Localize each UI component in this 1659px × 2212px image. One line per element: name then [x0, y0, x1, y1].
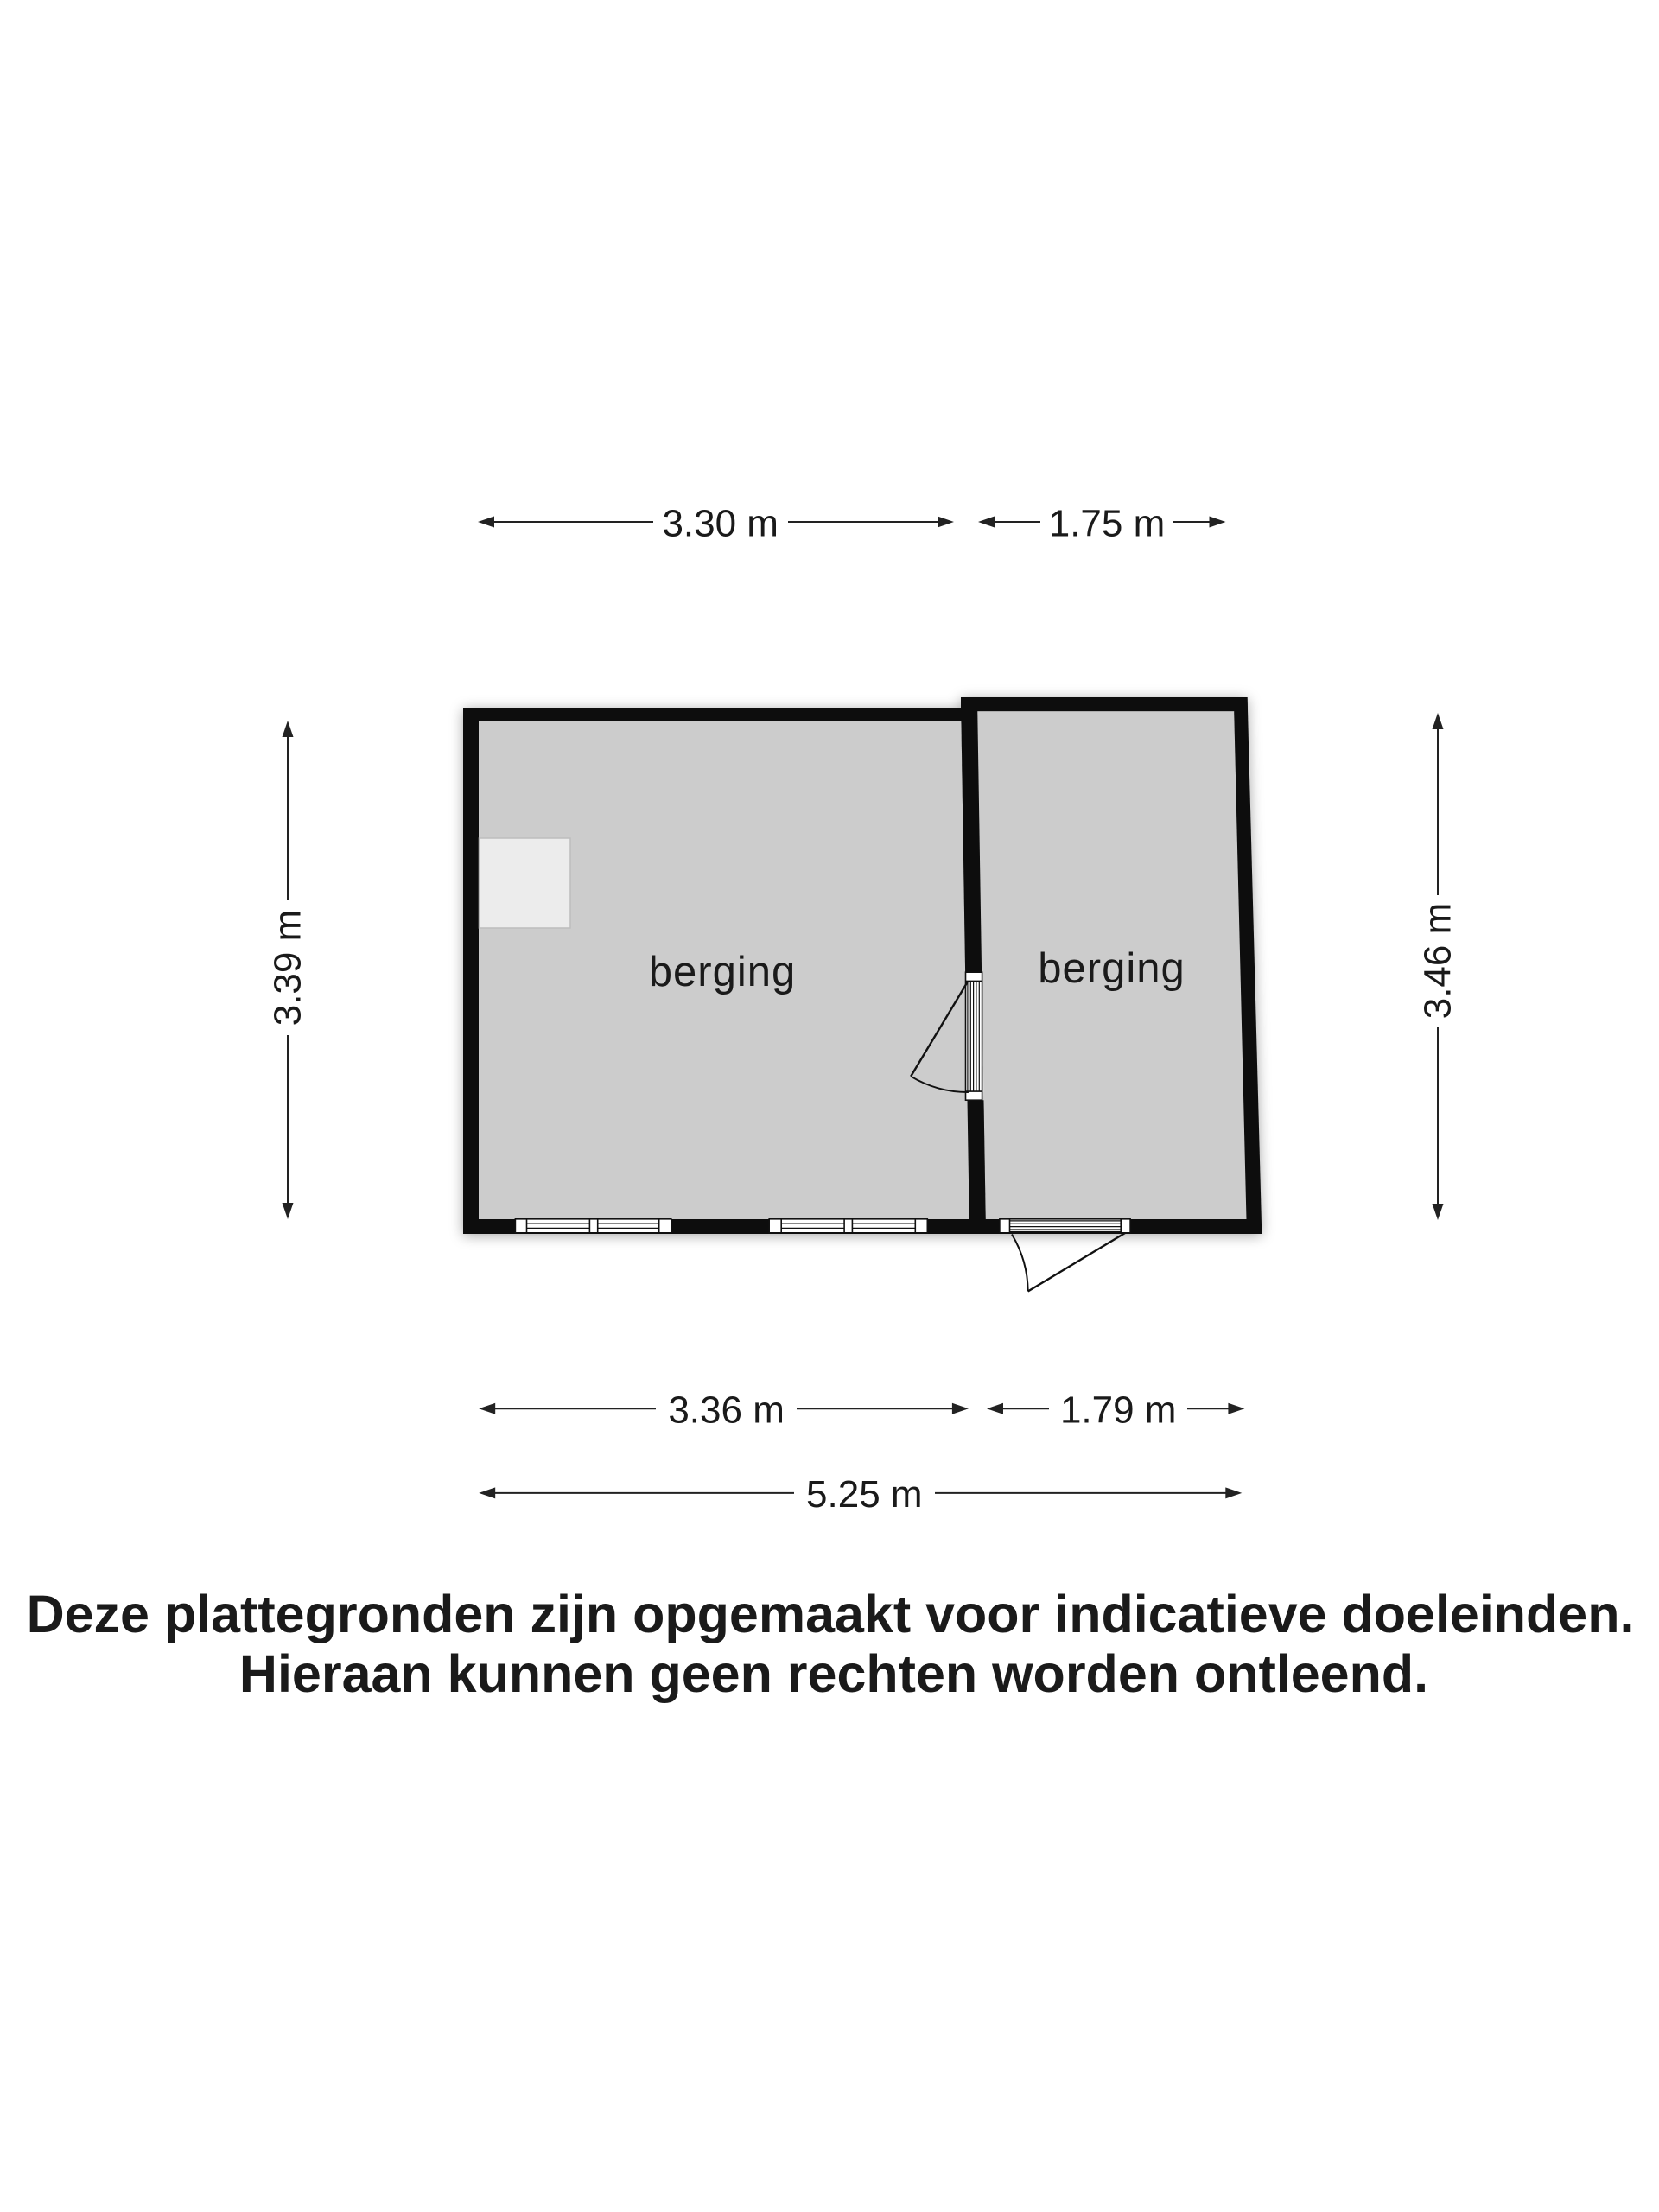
- svg-text:berging: berging: [649, 949, 796, 995]
- svg-text:5.25 m: 5.25 m: [806, 1473, 923, 1516]
- svg-text:3.36 m: 3.36 m: [668, 1389, 785, 1432]
- svg-text:3.39 m: 3.39 m: [267, 910, 309, 1027]
- svg-text:3.46 m: 3.46 m: [1417, 903, 1459, 1020]
- svg-text:berging: berging: [1038, 945, 1185, 992]
- svg-text:Hieraan kunnen geen rechten wo: Hieraan kunnen geen rechten worden ontle…: [239, 1644, 1428, 1703]
- svg-text:1.75 m: 1.75 m: [1049, 503, 1166, 545]
- svg-text:3.30 m: 3.30 m: [662, 503, 779, 545]
- svg-text:Deze plattegronden zijn opgema: Deze plattegronden zijn opgemaakt voor i…: [27, 1585, 1635, 1643]
- svg-text:1.79 m: 1.79 m: [1060, 1389, 1177, 1432]
